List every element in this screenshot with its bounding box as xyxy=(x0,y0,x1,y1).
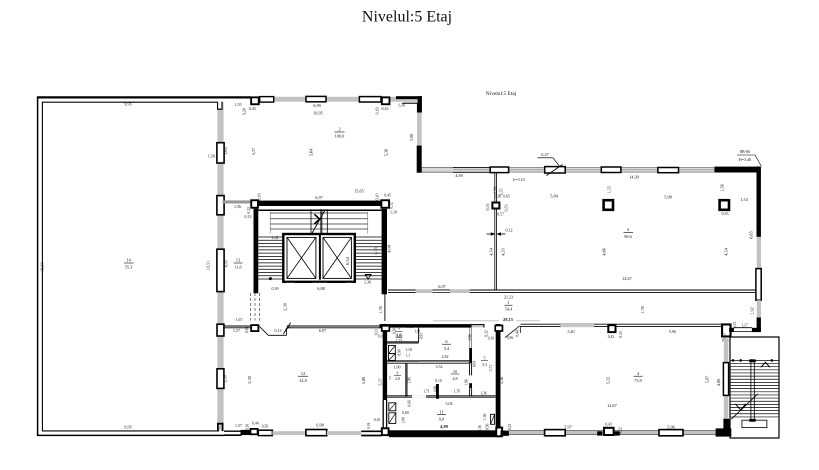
svg-text:28,15: 28,15 xyxy=(503,317,514,322)
svg-text:h=3.10: h=3.10 xyxy=(513,177,524,182)
svg-text:4,99: 4,99 xyxy=(440,424,448,429)
svg-text:5: 5 xyxy=(484,356,486,361)
svg-text:11: 11 xyxy=(439,409,443,414)
svg-text:7: 7 xyxy=(398,328,400,332)
svg-text:Nivelul:5 Etaj: Nivelul:5 Etaj xyxy=(362,9,452,26)
svg-text:12: 12 xyxy=(301,371,306,376)
svg-text:8B-06: 8B-06 xyxy=(740,149,750,154)
svg-text:H=3.40: H=3.40 xyxy=(739,157,751,162)
svg-text:1: 1 xyxy=(507,300,509,305)
svg-text:14: 14 xyxy=(126,258,131,263)
svg-text:VT: VT xyxy=(388,375,392,379)
svg-text:Nivelul:5 Etaj: Nivelul:5 Etaj xyxy=(486,91,517,97)
svg-text:10: 10 xyxy=(453,369,457,374)
svg-text:9: 9 xyxy=(397,371,399,375)
